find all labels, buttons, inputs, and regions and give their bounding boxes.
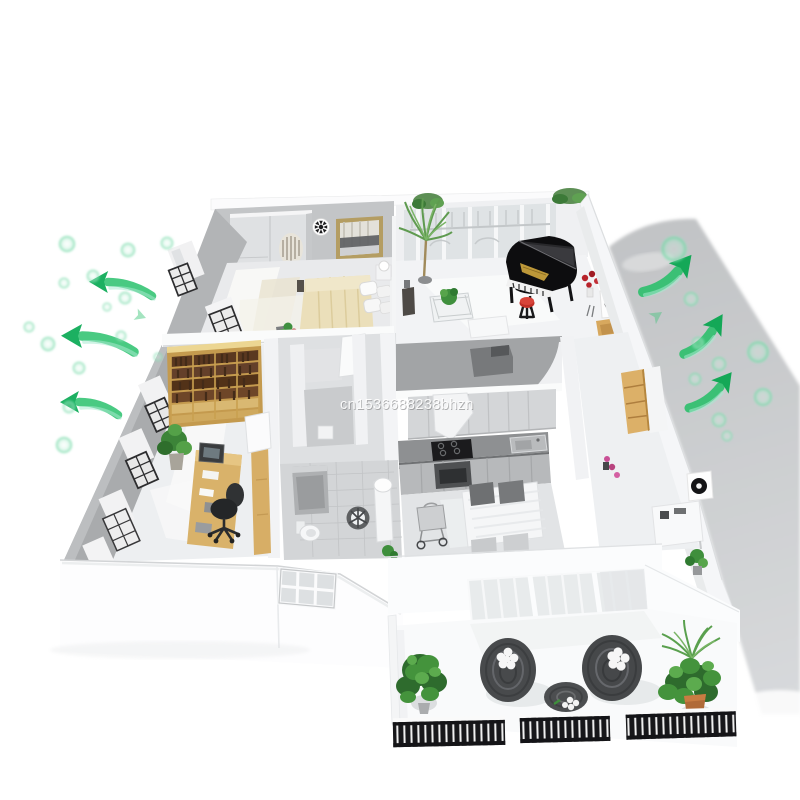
svg-text:cn1536688238bhzn: cn1536688238bhzn: [340, 397, 474, 413]
